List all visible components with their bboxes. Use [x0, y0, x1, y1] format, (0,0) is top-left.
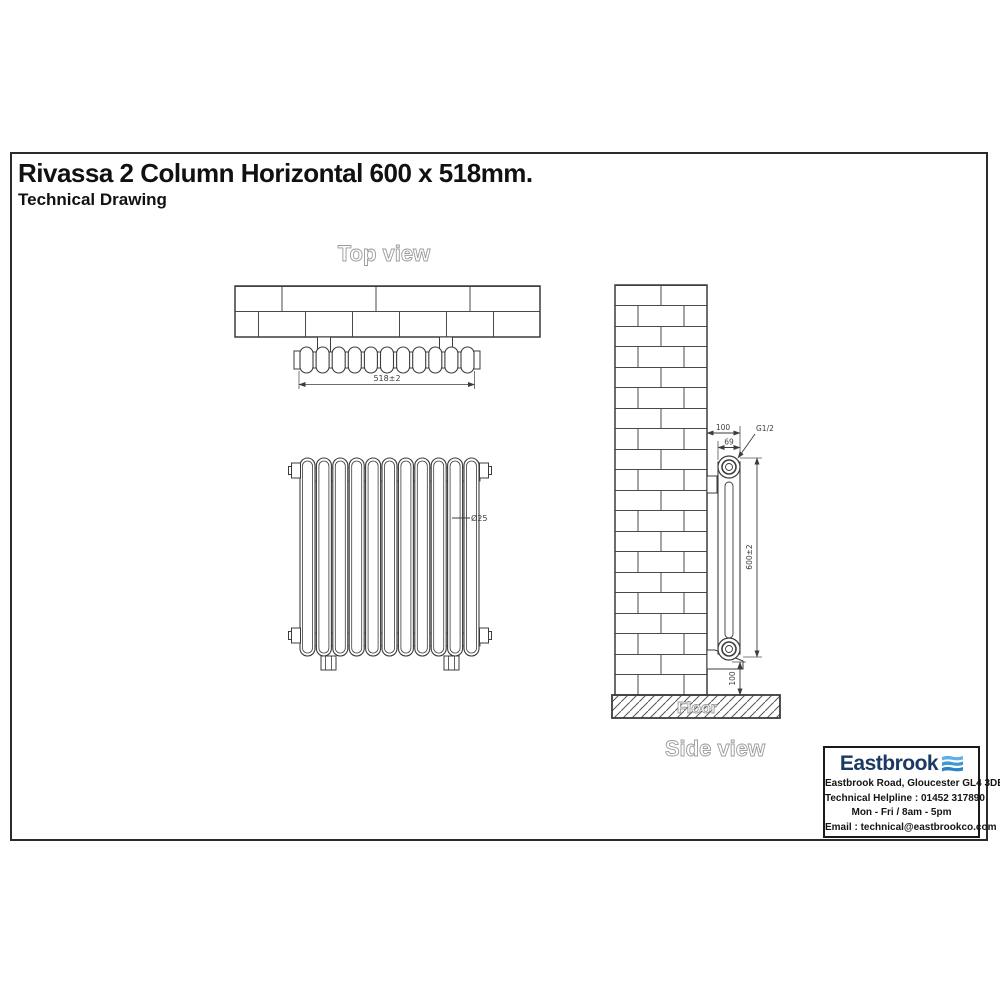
front-view: Ø25	[289, 458, 492, 670]
wall-offset-dim-text: 100	[716, 423, 731, 432]
side-view-top-connection	[718, 456, 740, 478]
technical-drawing-page: Rivassa 2 Column Horizontal 600 x 518mm.…	[0, 0, 1000, 1000]
side-view-wall-section	[615, 285, 707, 695]
helpline-line: Technical Helpline : 01452 317890	[825, 792, 978, 807]
top-view-wall-section	[235, 286, 540, 337]
depth-dim-text: 69	[724, 438, 734, 447]
floor-clearance-dim-text: 100	[728, 671, 737, 686]
floor-label: Floor	[677, 700, 717, 717]
side-view: Floor 100 69 G1/2 600±2 100 Side view	[612, 285, 780, 761]
manufacturer-infobox: Eastbrook Eastbrook Road, Gloucester GL4…	[823, 746, 980, 838]
front-view-diameter-dim-text: Ø25	[471, 513, 487, 523]
brand-logo-text: Eastbrook	[840, 752, 938, 776]
front-view-columns	[300, 458, 479, 656]
brand-logo: Eastbrook	[825, 751, 978, 777]
top-view-label: Top view	[338, 241, 431, 266]
technical-drawing: Top view	[0, 0, 1000, 1000]
side-view-bottom-connection	[718, 638, 740, 660]
address-line: Eastbrook Road, Gloucester GL4 3DB	[825, 777, 978, 792]
email-line: Email : technical@eastbrookco.com	[825, 821, 978, 836]
side-view-radiator-profile	[718, 456, 740, 660]
side-view-label: Side view	[665, 736, 766, 761]
height-dim-text: 600±2	[745, 544, 754, 570]
side-view-floor: Floor	[612, 695, 780, 718]
top-view: Top view	[235, 241, 540, 389]
connection-dim-text: G1/2	[756, 424, 774, 433]
top-view-radiator	[294, 347, 480, 373]
side-view-wall-bracket	[707, 476, 717, 493]
front-view-feet	[321, 656, 459, 670]
top-view-width-dim-text: 518±2	[373, 374, 400, 383]
eastbrook-waves-icon	[942, 755, 963, 773]
hours-line: Mon - Fri / 8am - 5pm	[825, 806, 978, 821]
